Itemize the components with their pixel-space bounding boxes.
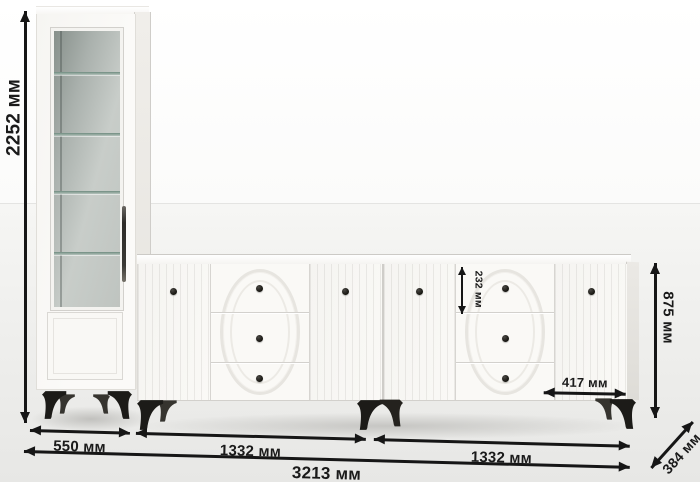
dim-arrow-top-drawer-height (461, 267, 463, 314)
door-handle (122, 206, 126, 282)
sideboard-front-leg (608, 398, 636, 430)
drawer-separator (211, 362, 309, 363)
dim-label-top-drawer-height: 232 мм (473, 263, 484, 315)
dim-label-sideboard-height: 875 мм (661, 276, 676, 360)
door-knob (588, 288, 595, 295)
sideboard-left-unit (138, 264, 382, 400)
door-knob (342, 288, 349, 295)
panel-inset-frame (53, 318, 117, 374)
glass-door (51, 28, 123, 310)
drawer-stack (456, 264, 554, 400)
drawer-knob (502, 375, 509, 382)
drawer-knob (502, 285, 509, 292)
drawer-knob (502, 335, 509, 342)
glass-shelf (54, 72, 120, 75)
fluted-door (384, 264, 457, 400)
furniture-dimension-diagram: 2252 мм 550 мм 1332 мм 1332 мм 3213 мм 8… (0, 0, 700, 482)
drawer-separator (456, 312, 554, 313)
cabinet-front-left-leg (42, 390, 68, 420)
door-knob (170, 288, 177, 295)
glass-shelf (54, 191, 120, 194)
dim-arrow-vertical (24, 11, 27, 423)
sideboard-front-leg (378, 398, 403, 428)
dim-arrow-sideboard-height (654, 263, 657, 418)
fluted-door (138, 264, 211, 400)
sideboard-side-panel (626, 262, 639, 400)
tall-display-cabinet (36, 14, 136, 390)
dim-label-right-door-width: 417 мм (544, 375, 626, 389)
door-knob (416, 288, 423, 295)
glass-shelf (54, 252, 120, 255)
drawer-stack (211, 264, 309, 400)
sideboard-front-leg (137, 399, 165, 431)
dim-label-cabinet-height: 2252 мм (5, 74, 24, 162)
cabinet-front-right-leg (106, 390, 132, 420)
drawer-separator (456, 362, 554, 363)
drawer-oval-ring (230, 280, 290, 384)
glass-shelf (54, 133, 120, 136)
cabinet-bottom-panel (47, 312, 123, 380)
drawer-separator (211, 312, 309, 313)
fluted-door (309, 264, 382, 400)
drawer-oval-ring (475, 280, 535, 384)
